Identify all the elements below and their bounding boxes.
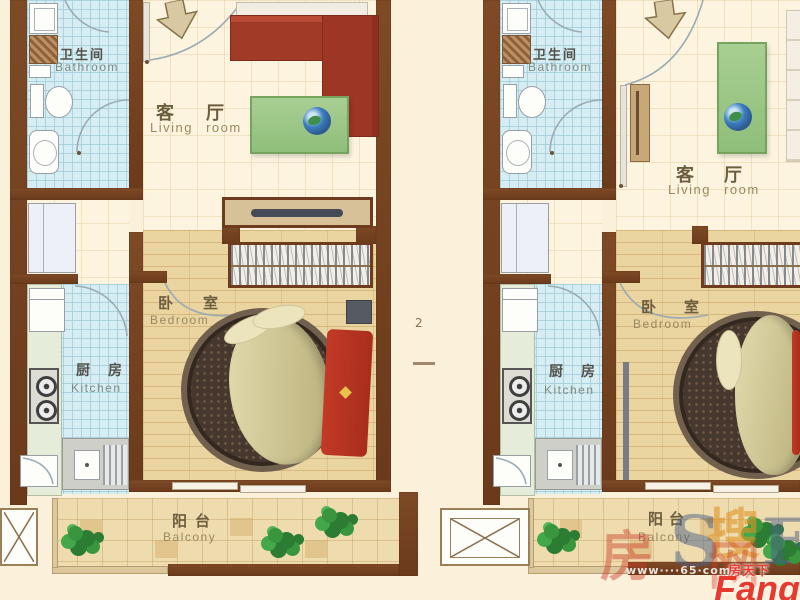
washing-machine bbox=[29, 3, 58, 34]
kitchen-label-zh: 厨房 bbox=[76, 360, 140, 380]
door-hinge bbox=[145, 60, 149, 64]
bathroom-label-en: Bathroom bbox=[528, 60, 592, 74]
balcony-plant bbox=[322, 508, 337, 523]
elevator-x-icon bbox=[451, 519, 519, 557]
wall bbox=[483, 274, 551, 284]
bedroom-label-en: Bedroom bbox=[633, 317, 692, 331]
dimension-dash bbox=[413, 362, 435, 365]
window-track bbox=[623, 362, 629, 480]
washing-machine-door bbox=[507, 8, 528, 31]
toilet-tank bbox=[30, 84, 44, 118]
kitchen-label-zh: 厨房 bbox=[549, 361, 613, 381]
wall bbox=[129, 271, 167, 283]
kitchen-sink-unit bbox=[62, 438, 129, 490]
wall bbox=[10, 0, 27, 505]
toilet-tank bbox=[503, 84, 517, 118]
balcony-door-panel bbox=[493, 455, 531, 487]
door-hinge bbox=[77, 151, 81, 155]
sliding-door bbox=[172, 482, 238, 490]
bath-shelf bbox=[29, 65, 51, 78]
burner bbox=[36, 376, 57, 397]
entrance-arrow-icon bbox=[642, 0, 695, 43]
door-arc bbox=[63, 0, 109, 32]
door-hinge bbox=[619, 184, 623, 188]
sink-drain bbox=[85, 463, 89, 467]
bath-mat bbox=[29, 35, 58, 64]
red-throw bbox=[792, 330, 800, 455]
door-arc bbox=[496, 458, 528, 484]
fridge bbox=[502, 288, 538, 332]
door-hinge bbox=[550, 151, 554, 155]
balcony-plant bbox=[544, 524, 559, 539]
bedroom-label-zh: 卧室 bbox=[158, 292, 248, 313]
cabinet-divider bbox=[516, 204, 517, 272]
washing-machine bbox=[502, 3, 531, 34]
door-arc bbox=[548, 286, 602, 338]
wall bbox=[10, 274, 78, 284]
tv-stand bbox=[222, 197, 373, 228]
washbasin bbox=[29, 130, 59, 174]
coffee-table bbox=[250, 96, 349, 154]
watermark-red-char-left: 房 bbox=[600, 512, 654, 591]
bedroom-label-en: Bedroom bbox=[150, 313, 209, 327]
living-room-label-en: Living room bbox=[150, 120, 242, 135]
stove bbox=[29, 368, 59, 424]
wall bbox=[483, 0, 500, 505]
washbasin-bowl bbox=[506, 140, 530, 166]
bedroom-label-zh: 卧室 bbox=[641, 296, 727, 317]
washbasin bbox=[502, 130, 532, 174]
door-arc bbox=[23, 458, 55, 484]
balcony-tile bbox=[305, 540, 327, 558]
washbasin-bowl bbox=[33, 140, 57, 166]
elevator-inner bbox=[450, 518, 520, 558]
wardrobe bbox=[701, 242, 800, 288]
bathroom-label-en: Bathroom bbox=[55, 60, 119, 74]
coffee-table bbox=[717, 42, 767, 154]
fang-logo: 房天下 Fang bbox=[714, 558, 800, 600]
hall-cabinet bbox=[501, 203, 549, 273]
balcony-plant bbox=[68, 526, 83, 541]
wardrobe bbox=[228, 242, 373, 288]
balcony-plant bbox=[268, 528, 283, 543]
bath-shelf bbox=[502, 65, 524, 78]
wall bbox=[129, 0, 143, 198]
fridge bbox=[29, 288, 65, 332]
wall bbox=[483, 188, 616, 200]
door-leaf bbox=[143, 2, 150, 62]
balcony-railing bbox=[52, 566, 168, 574]
drainer bbox=[576, 445, 600, 485]
shoe-cabinet bbox=[630, 84, 650, 162]
balcony-label-zh: 阳台 bbox=[172, 510, 218, 531]
wall bbox=[168, 564, 399, 576]
bath-mat bbox=[502, 35, 531, 64]
balcony-tile bbox=[230, 518, 252, 536]
drainer bbox=[103, 445, 127, 485]
pillow bbox=[716, 330, 742, 390]
door-arc bbox=[550, 100, 602, 153]
door-arc bbox=[77, 100, 129, 153]
kitchen-label-en: Kitchen bbox=[71, 381, 122, 395]
sliding-door bbox=[240, 485, 306, 493]
dimension-number: 2 bbox=[415, 316, 423, 330]
wall bbox=[602, 0, 616, 198]
elevator-shaft bbox=[440, 508, 530, 566]
toilet-bowl bbox=[45, 86, 73, 118]
balcony-tile bbox=[560, 520, 582, 538]
burner bbox=[36, 400, 57, 421]
burner bbox=[509, 400, 530, 421]
hall-cabinet bbox=[28, 203, 76, 273]
bed-duvet bbox=[735, 315, 800, 475]
elevator-shaft bbox=[0, 508, 38, 566]
elevator-x-icon bbox=[4, 512, 34, 562]
door-arc bbox=[536, 0, 582, 32]
globe bbox=[303, 107, 331, 135]
globe bbox=[724, 103, 752, 131]
floorplan-canvas: 卫生间 Bathroom 客厅 Living room 卧室 Bedroom 厨… bbox=[0, 0, 800, 600]
stove bbox=[502, 368, 532, 424]
kitchen-label-en: Kitchen bbox=[544, 383, 595, 397]
fridge-line bbox=[30, 299, 64, 300]
cabinet-divider bbox=[43, 204, 44, 272]
burner bbox=[509, 376, 530, 397]
wall bbox=[399, 492, 418, 576]
sofa bbox=[786, 10, 800, 162]
balcony-railing bbox=[52, 498, 58, 568]
sliding-door bbox=[645, 482, 711, 490]
wall bbox=[602, 271, 640, 283]
tv bbox=[251, 209, 343, 217]
kitchen-sink-unit bbox=[535, 438, 602, 490]
balcony-tile bbox=[80, 520, 102, 538]
door-leaf bbox=[620, 85, 627, 187]
toilet-bowl bbox=[518, 86, 546, 118]
balcony-label-en: Balcony bbox=[163, 530, 216, 544]
living-room-label-en: Living room bbox=[668, 182, 760, 197]
fang-logo-en: Fang bbox=[714, 568, 800, 600]
nightstand bbox=[346, 300, 372, 324]
balcony-door-panel bbox=[20, 455, 58, 487]
cabinet-handle bbox=[636, 91, 639, 155]
wall bbox=[10, 188, 143, 200]
balcony-floor bbox=[52, 498, 400, 566]
sink-drain bbox=[558, 463, 562, 467]
door-arc bbox=[75, 286, 129, 338]
washing-machine-door bbox=[34, 8, 55, 31]
fridge-line bbox=[503, 299, 537, 300]
